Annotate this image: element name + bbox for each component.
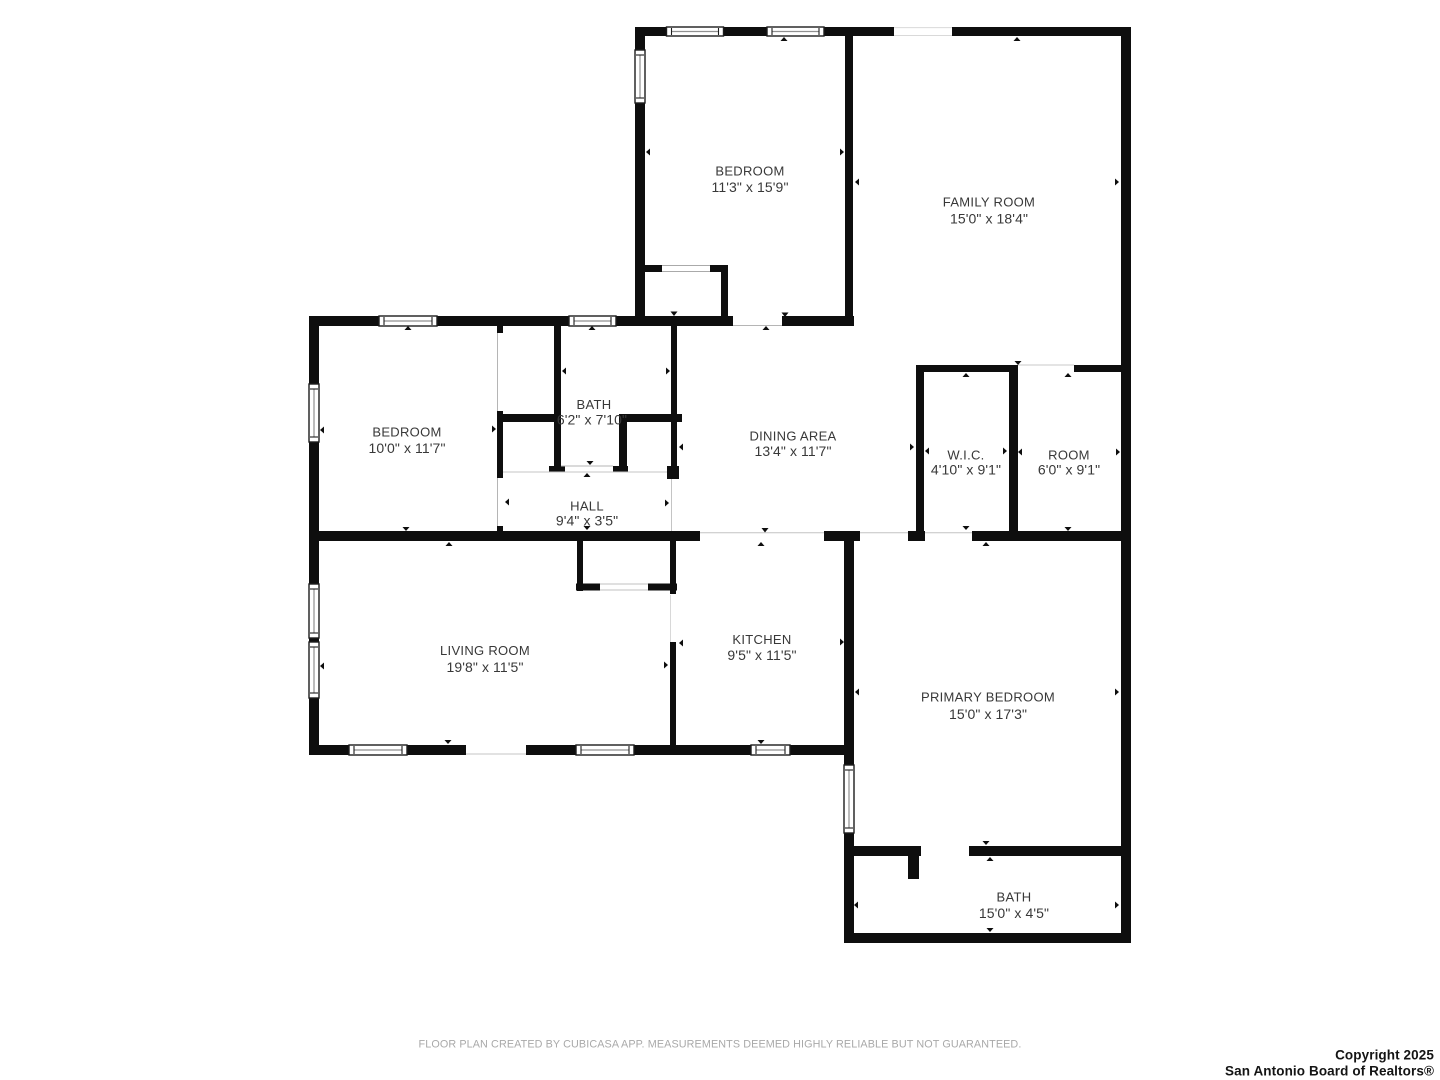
svg-text:BATH: BATH <box>577 397 612 412</box>
svg-text:BATH: BATH <box>997 889 1032 904</box>
svg-text:Copyright 2025: Copyright 2025 <box>1335 1048 1434 1063</box>
svg-text:19'8" x 11'5": 19'8" x 11'5" <box>446 659 523 675</box>
svg-text:BEDROOM: BEDROOM <box>372 425 441 440</box>
svg-text:9'5" x 11'5": 9'5" x 11'5" <box>727 647 796 663</box>
svg-text:9'4" x 3'5": 9'4" x 3'5" <box>556 513 618 529</box>
svg-text:FLOOR PLAN CREATED BY CUBICASA: FLOOR PLAN CREATED BY CUBICASA APP. MEAS… <box>419 1039 1022 1051</box>
svg-text:13'4" x 11'7": 13'4" x 11'7" <box>754 443 831 459</box>
svg-text:6'0" x 9'1": 6'0" x 9'1" <box>1038 462 1100 478</box>
svg-text:KITCHEN: KITCHEN <box>732 632 791 647</box>
svg-text:W.I.C.: W.I.C. <box>947 448 984 463</box>
svg-text:11'3" x 15'9": 11'3" x 15'9" <box>711 179 788 195</box>
svg-text:San Antonio Board of Realtors®: San Antonio Board of Realtors® <box>1225 1064 1434 1079</box>
svg-text:6'2" x 7'10": 6'2" x 7'10" <box>557 412 627 428</box>
svg-text:DINING AREA: DINING AREA <box>749 429 836 444</box>
svg-text:HALL: HALL <box>570 499 604 514</box>
svg-text:15'0" x 4'5": 15'0" x 4'5" <box>979 905 1049 921</box>
svg-text:15'0" x 18'4": 15'0" x 18'4" <box>950 211 1028 227</box>
svg-text:FAMILY ROOM: FAMILY ROOM <box>943 195 1035 210</box>
svg-text:BEDROOM: BEDROOM <box>715 164 784 179</box>
svg-text:LIVING ROOM: LIVING ROOM <box>440 643 530 658</box>
svg-text:10'0" x 11'7": 10'0" x 11'7" <box>368 440 445 456</box>
svg-text:PRIMARY BEDROOM: PRIMARY BEDROOM <box>921 690 1055 705</box>
svg-text:ROOM: ROOM <box>1048 448 1090 463</box>
svg-text:15'0" x 17'3": 15'0" x 17'3" <box>949 706 1027 722</box>
svg-text:4'10" x 9'1": 4'10" x 9'1" <box>931 462 1001 478</box>
